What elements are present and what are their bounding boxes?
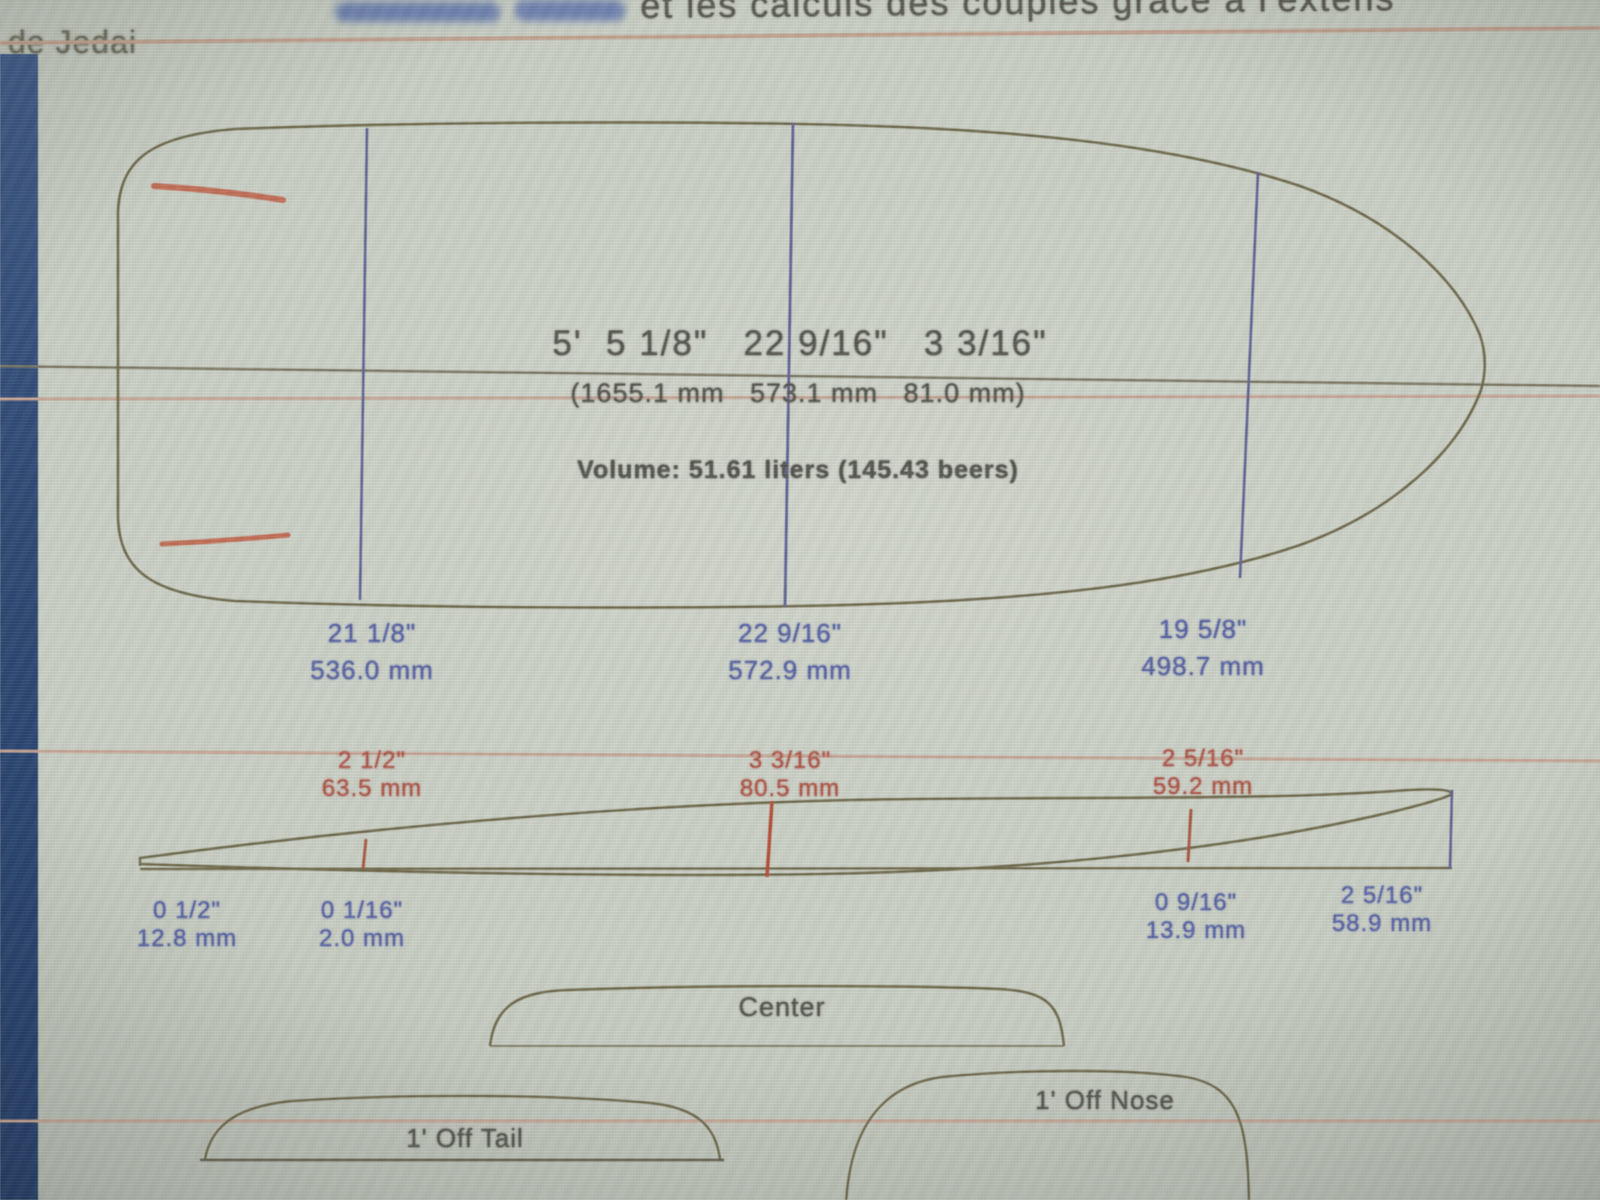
rocker-nose2-in: 0 9/16" xyxy=(1155,889,1237,917)
thickness-center-mm: 80.5 mm xyxy=(740,775,840,803)
width-nose-mm: 498.7 mm xyxy=(1141,651,1265,682)
rocker-nose-line xyxy=(1450,790,1452,869)
section-label-center: Center xyxy=(738,992,825,1023)
fin-mark-bottom xyxy=(162,535,288,544)
thickness-tail-in: 2 1/2" xyxy=(338,747,406,775)
board-dimensions-imperial: 5' 5 1/8" 22 9/16" 3 3/16" xyxy=(552,324,1047,364)
thickness-nose-mm: 59.2 mm xyxy=(1153,773,1253,801)
section-label-offnose: 1' Off Nose xyxy=(1035,1085,1175,1116)
width-center-mm: 572.9 mm xyxy=(728,655,852,686)
rocker-nose2-mm: 13.9 mm xyxy=(1146,917,1246,945)
plan-outline xyxy=(118,122,1485,607)
plan-section-line-center xyxy=(785,123,793,607)
thickness-nose-in: 2 5/16" xyxy=(1162,745,1244,773)
fin-mark-top xyxy=(154,186,283,200)
rocker-section-nose xyxy=(1188,809,1191,862)
rocker-tail-in: 0 1/2" xyxy=(153,897,221,925)
rocker-tail-mm: 12.8 mm xyxy=(137,925,237,953)
plan-section-line-tail xyxy=(360,128,367,600)
rocker-tail2-mm: 2.0 mm xyxy=(319,925,405,953)
section-label-offtail: 1' Off Tail xyxy=(406,1123,524,1154)
rocker-nose-in: 2 5/16" xyxy=(1341,882,1423,910)
rocker-nose-mm: 58.9 mm xyxy=(1332,910,1432,938)
thickness-center-in: 3 3/16" xyxy=(749,747,831,775)
width-center-in: 22 9/16" xyxy=(738,618,842,649)
width-tail-mm: 536.0 mm xyxy=(310,655,434,686)
width-nose-in: 19 5/8" xyxy=(1159,614,1248,645)
plan-section-line-nose xyxy=(1240,172,1258,578)
rocker-tail2-in: 0 1/16" xyxy=(321,897,403,925)
width-tail-in: 21 1/8" xyxy=(328,618,417,649)
screen-content: et les calculs des couples grâce à l'ext… xyxy=(0,0,1600,1200)
board-volume: Volume: 51.61 liters (145.43 beers) xyxy=(577,456,1019,485)
screen-photo: { "header": { "clipped_line": "et les ca… xyxy=(0,0,1600,1200)
rocker-section-center xyxy=(767,801,772,877)
header-rule xyxy=(0,28,1600,43)
thickness-tail-mm: 63.5 mm xyxy=(322,775,422,803)
board-dimensions-metric: (1655.1 mm 573.1 mm 81.0 mm) xyxy=(570,378,1025,409)
rocker-section-tail xyxy=(363,839,366,869)
